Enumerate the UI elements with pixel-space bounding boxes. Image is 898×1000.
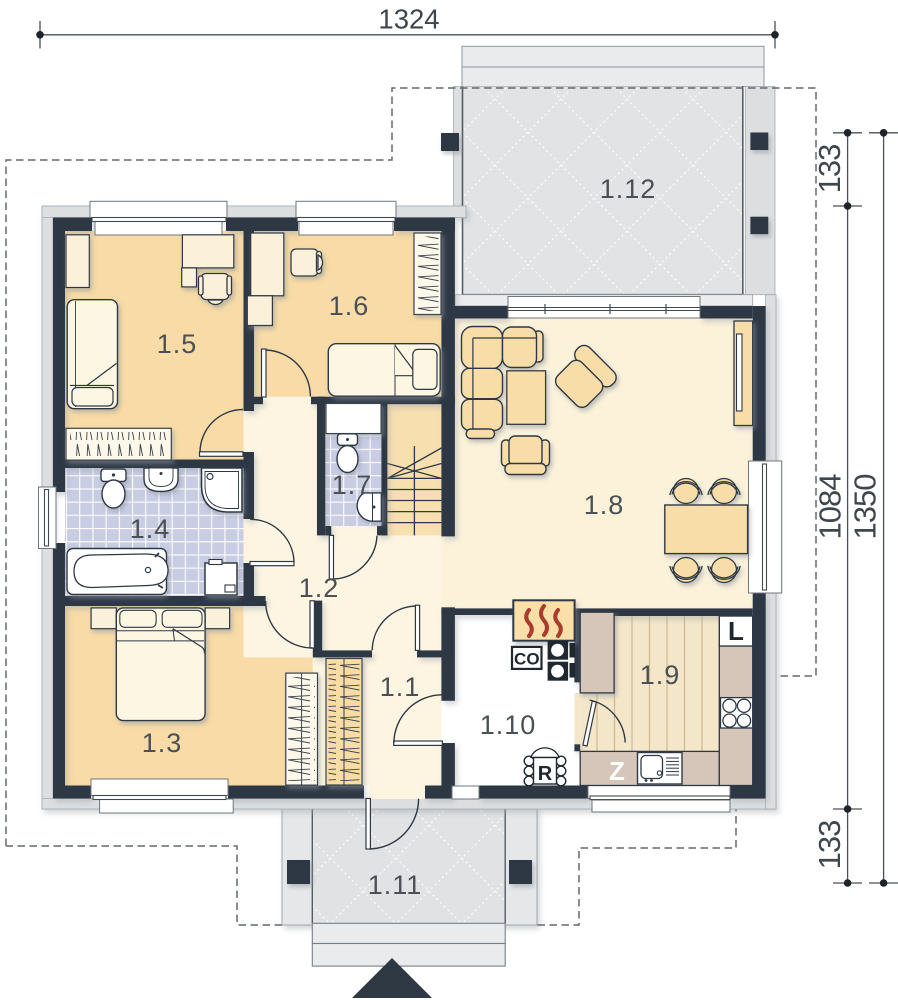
svg-text:L: L	[728, 616, 744, 646]
svg-text:1.1: 1.1	[380, 672, 421, 702]
svg-text:133: 133	[812, 145, 847, 194]
svg-text:1.2: 1.2	[299, 573, 340, 603]
svg-text:1084: 1084	[813, 474, 848, 540]
svg-text:1.9: 1.9	[640, 660, 681, 690]
svg-text:133: 133	[812, 821, 847, 870]
svg-text:1.11: 1.11	[368, 870, 423, 900]
svg-text:R: R	[538, 763, 553, 785]
svg-text:Z: Z	[609, 756, 625, 786]
svg-text:1324: 1324	[378, 4, 439, 35]
svg-text:1.8: 1.8	[584, 490, 625, 520]
svg-text:1.12: 1.12	[600, 174, 657, 204]
svg-text:1.3: 1.3	[142, 728, 183, 758]
svg-text:1.5: 1.5	[157, 329, 198, 359]
svg-text:1.6: 1.6	[329, 291, 370, 321]
svg-text:1350: 1350	[848, 474, 883, 540]
svg-text:1.10: 1.10	[480, 710, 537, 740]
svg-text:1.7: 1.7	[332, 470, 373, 500]
svg-text:1.4: 1.4	[130, 514, 171, 544]
svg-text:CO: CO	[514, 650, 540, 669]
